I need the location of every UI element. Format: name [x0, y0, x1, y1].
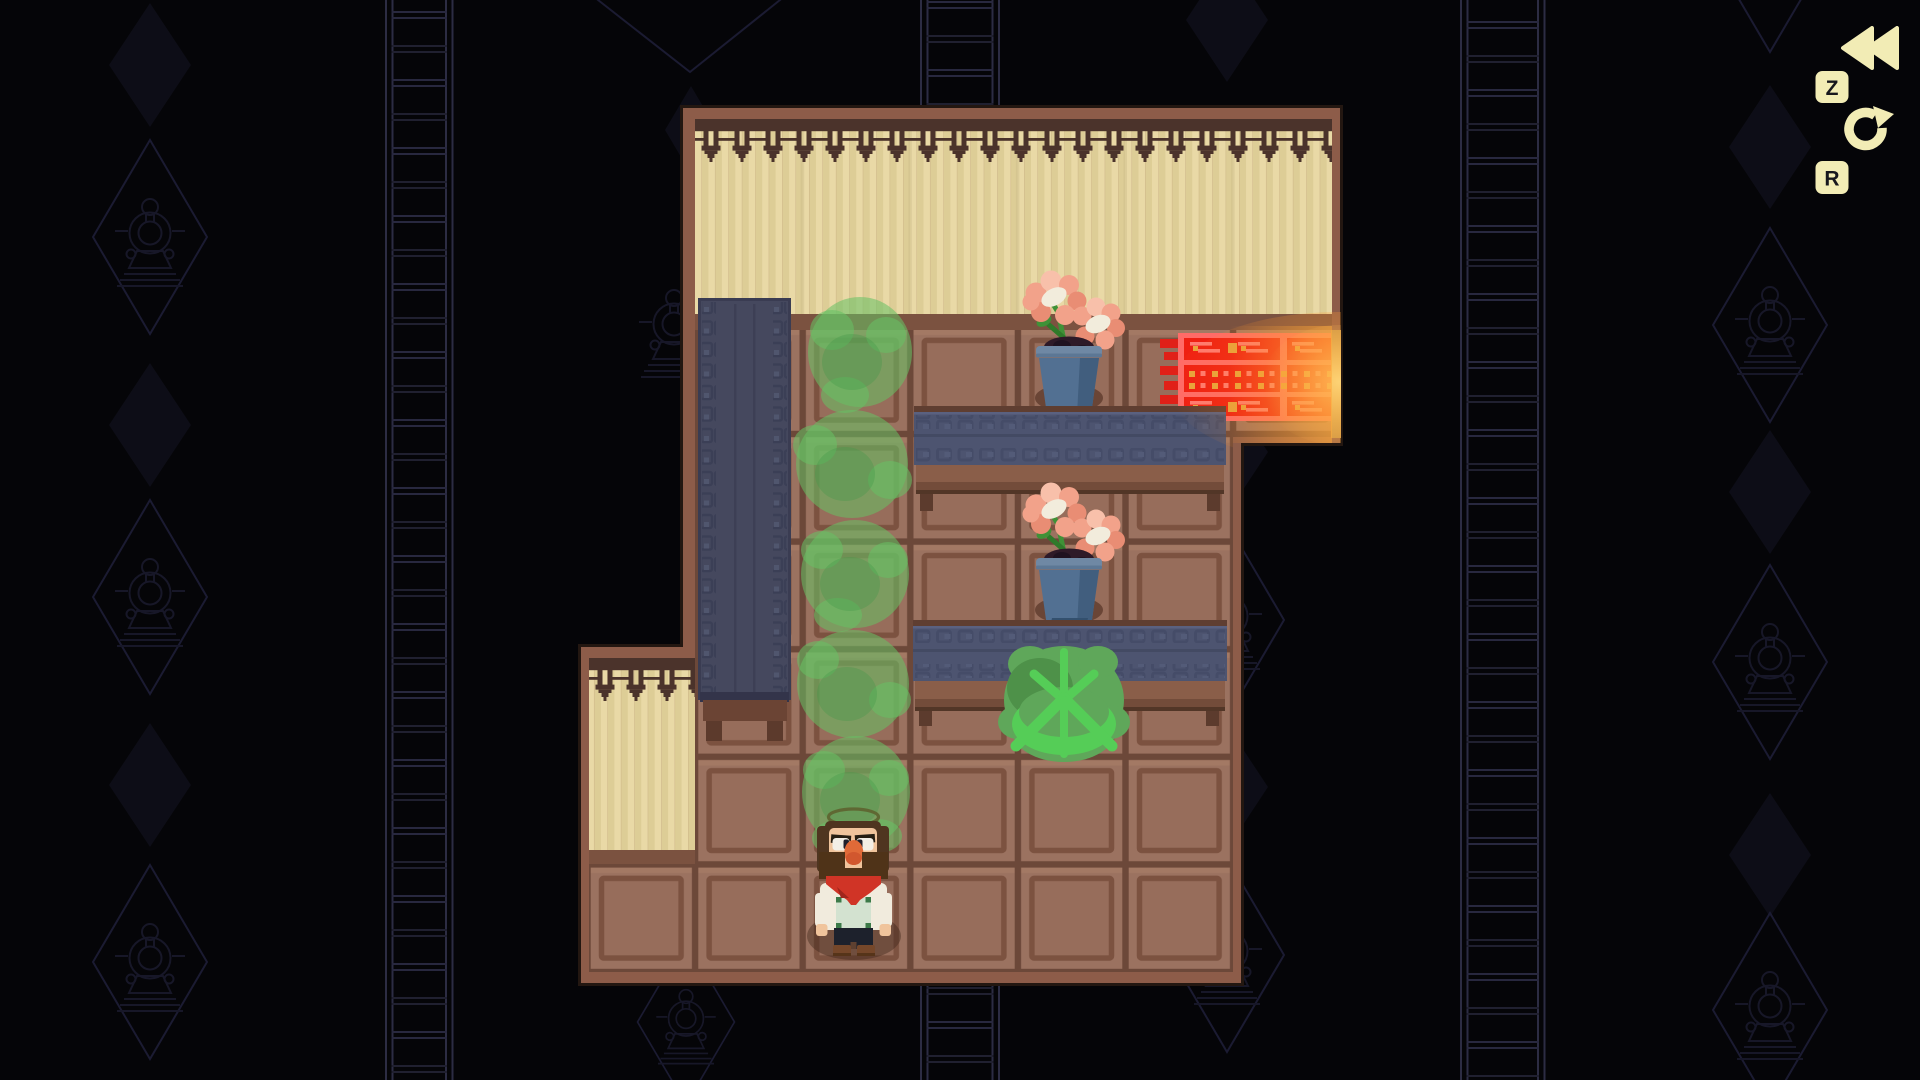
svg-text:Z: Z: [1826, 77, 1839, 100]
svg-text:R: R: [1824, 168, 1839, 191]
